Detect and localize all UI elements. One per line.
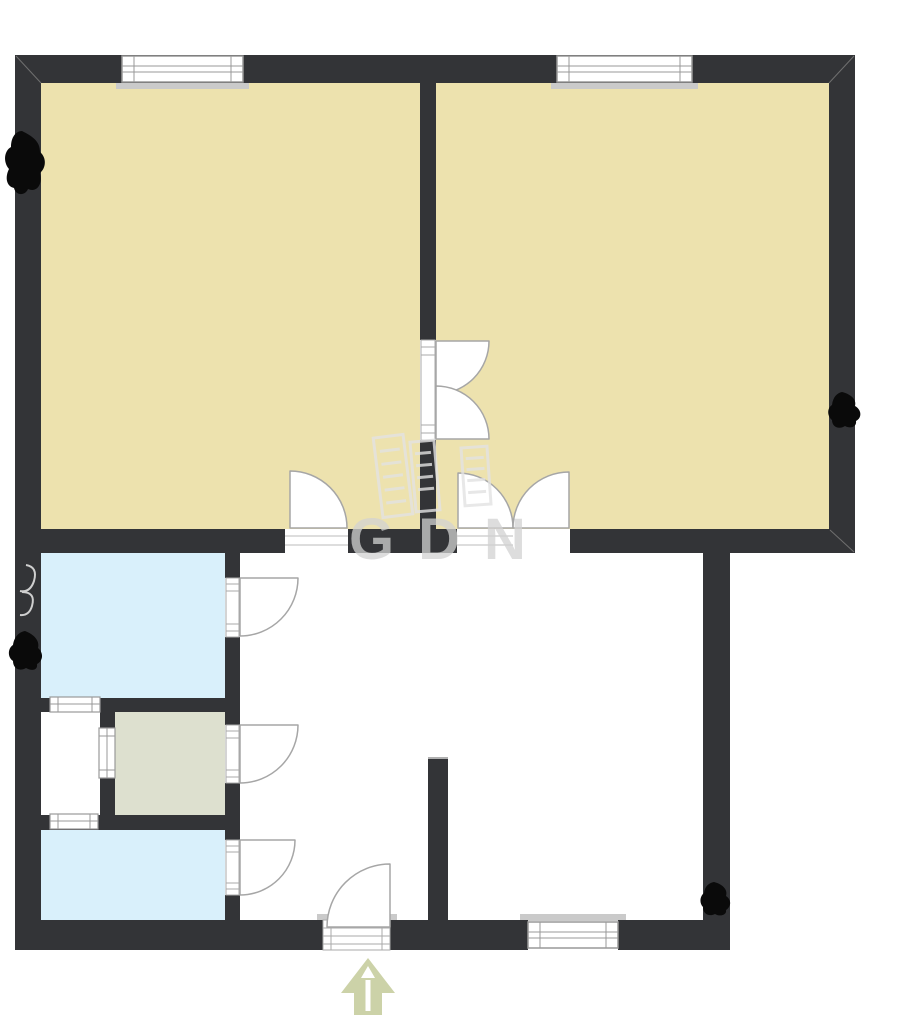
room-fill-olive (115, 712, 225, 815)
wall-leftrooms-2 (225, 637, 240, 725)
watermark-tower-stripe (468, 491, 486, 492)
wall-mid-left (15, 529, 285, 553)
watermark-tower-stripe (415, 452, 431, 453)
room-fill-top-left (41, 83, 420, 529)
wall-divider-upper (420, 83, 436, 340)
sill-top-right (551, 82, 698, 89)
watermark-text: GDN (349, 507, 550, 572)
threshold-hall-door-2 (226, 725, 239, 783)
wall-mid-right (570, 529, 855, 553)
watermark-tower-stripe (467, 468, 485, 469)
room-fill-left-upper-blue (41, 553, 225, 698)
watermark-tower-stripe (467, 479, 485, 480)
floor-plan-svg: GDN (0, 0, 897, 1024)
threshold-hall-door-3 (226, 840, 239, 895)
floor-plan: GDN (0, 0, 897, 1024)
watermark-tower-stripe (416, 464, 432, 465)
sill-bottom-window (520, 914, 626, 921)
threshold-hall-door-1 (226, 578, 239, 637)
room-fill-left-lower-blue (41, 830, 225, 920)
wall-leftrooms-3 (225, 783, 240, 840)
wall-stub (428, 757, 448, 920)
watermark-group: GDN (349, 507, 550, 572)
door-entrance (327, 864, 390, 927)
room-fill-top-right (436, 83, 829, 529)
window-top-left (122, 56, 243, 82)
threshold-left-room-door (285, 529, 348, 553)
watermark-tower-stripe (466, 457, 484, 458)
sill-top-left (116, 82, 249, 89)
wall-leftrooms-4 (225, 895, 240, 920)
door-hall-2 (240, 725, 298, 783)
wall-leftrooms-1 (225, 553, 240, 578)
wall-bottom-center (390, 920, 528, 950)
wall-bottom-left (15, 920, 323, 950)
wall-bottom-right (618, 920, 730, 950)
entrance-arrow (341, 958, 395, 1015)
window-bottom (528, 922, 618, 948)
window-top-right (557, 56, 692, 82)
door-hall-3 (240, 840, 295, 895)
wall-right (829, 55, 855, 553)
watermark-tower-stripe (417, 476, 433, 477)
watermark-tower-stripe (418, 488, 434, 489)
door-hall-1 (240, 578, 298, 636)
